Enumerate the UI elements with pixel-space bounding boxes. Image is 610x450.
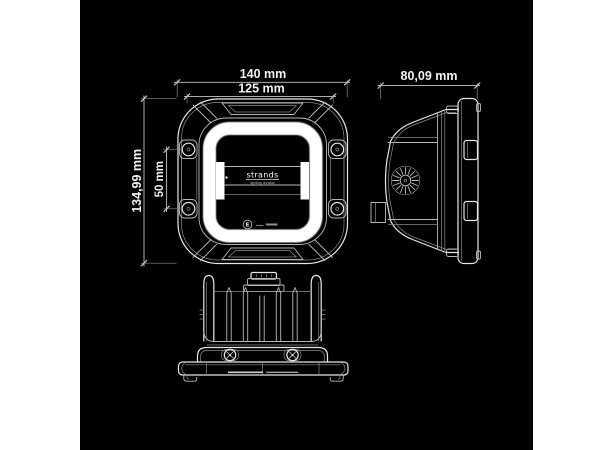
dimension-label-front-width-lens: 125 mm <box>238 82 285 96</box>
dimension-label-side-depth: 80,09 mm <box>401 69 458 83</box>
lens-tab-left <box>216 162 225 200</box>
drawing-page: strands lighting division E <box>0 0 610 450</box>
emark-letter: E <box>246 223 250 229</box>
dimension-label-front-height: 134,99 mm <box>130 149 144 213</box>
lens-tab-right <box>301 162 310 200</box>
indicator-dot <box>226 177 228 179</box>
dimension-label-front-width-outer: 140 mm <box>240 67 287 81</box>
technical-drawing: strands lighting division E <box>0 0 610 450</box>
brand-logo: strands <box>247 171 279 180</box>
dimension-label-hole-spacing: 50 mm <box>154 161 166 197</box>
brand-logo-sub: lighting division <box>250 181 275 185</box>
